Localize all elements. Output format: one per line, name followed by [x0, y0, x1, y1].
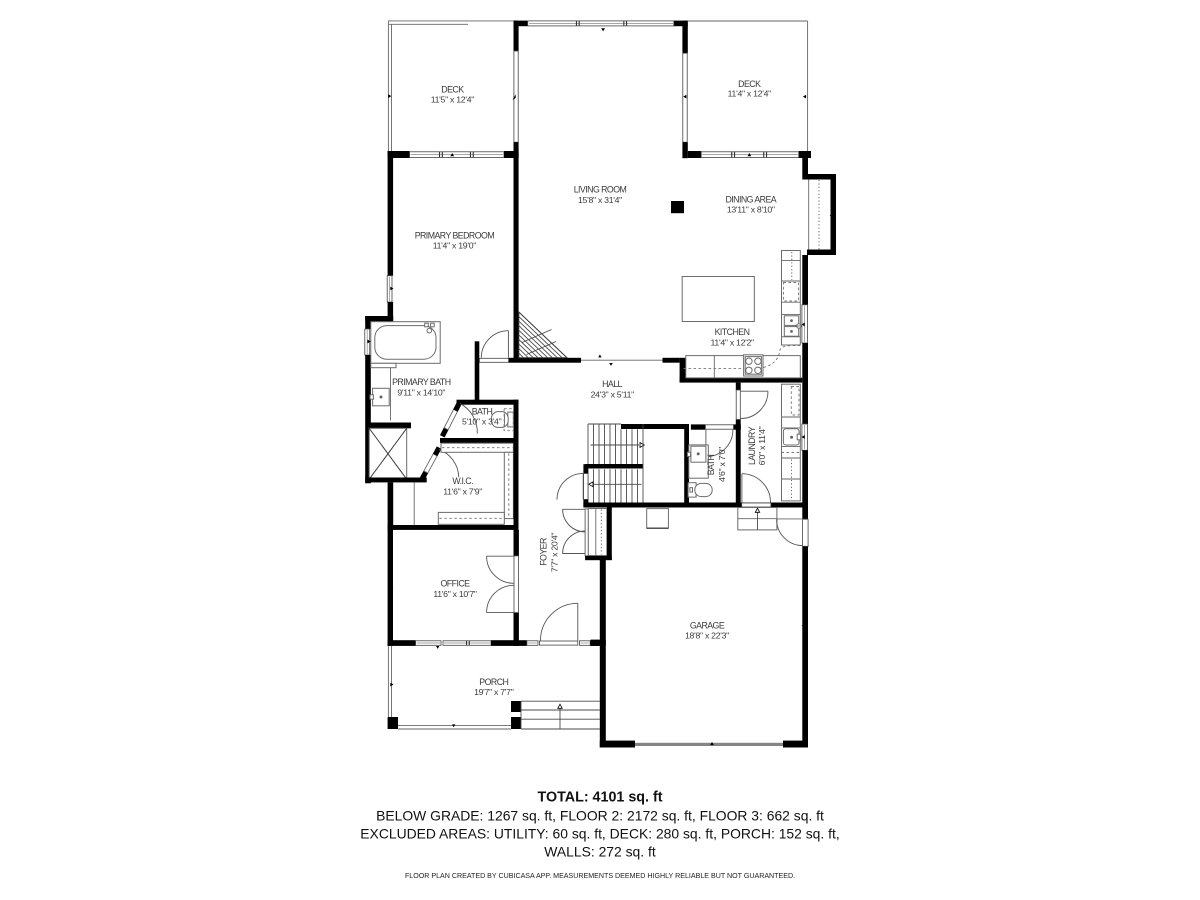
svg-text:EXCLUDED AREAS: UTILITY: 60 sq: EXCLUDED AREAS: UTILITY: 60 sq. ft, DECK…: [360, 826, 839, 842]
svg-text:19'7" x 7'7": 19'7" x 7'7": [474, 687, 514, 697]
svg-text:11'6" x 10'7": 11'6" x 10'7": [433, 589, 477, 599]
svg-text:BATH: BATH: [472, 406, 493, 416]
svg-text:11'5" x 12'4": 11'5" x 12'4": [431, 95, 475, 105]
svg-text:PORCH: PORCH: [479, 677, 508, 687]
svg-text:OFFICE: OFFICE: [441, 579, 471, 589]
svg-text:WALLS: 272 sq. ft: WALLS: 272 sq. ft: [544, 843, 656, 859]
svg-text:LAUNDRY: LAUNDRY: [747, 426, 757, 465]
svg-text:11'6" x 7'9": 11'6" x 7'9": [443, 486, 482, 496]
svg-text:18'8" x 22'3": 18'8" x 22'3": [685, 631, 729, 641]
svg-text:11'4" x 12'2": 11'4" x 12'2": [711, 337, 755, 347]
svg-text:13'11" x 8'10": 13'11" x 8'10": [727, 205, 775, 215]
svg-text:GARAGE: GARAGE: [690, 620, 725, 630]
svg-text:11'4" x 19'0": 11'4" x 19'0": [433, 241, 477, 251]
svg-text:4'6" x 7'0": 4'6" x 7'0": [717, 447, 727, 482]
svg-text:TOTAL: 4101 sq. ft: TOTAL: 4101 sq. ft: [538, 790, 663, 806]
svg-text:11'4" x 12'4": 11'4" x 12'4": [728, 89, 772, 99]
svg-text:DECK: DECK: [441, 84, 464, 94]
svg-text:15'8" x 31'4": 15'8" x 31'4": [578, 195, 622, 205]
svg-text:PRIMARY BEDROOM: PRIMARY BEDROOM: [415, 230, 495, 240]
svg-text:6'0" x 11'4": 6'0" x 11'4": [757, 426, 767, 465]
svg-text:BATH: BATH: [706, 454, 716, 475]
svg-text:DECK: DECK: [738, 79, 761, 89]
svg-text:W.I.C.: W.I.C.: [452, 476, 473, 486]
svg-text:KITCHEN: KITCHEN: [715, 327, 750, 337]
svg-text:FLOOR PLAN CREATED BY CUBICASA: FLOOR PLAN CREATED BY CUBICASA APP. MEAS…: [405, 872, 795, 880]
svg-text:9'11" x 14'10": 9'11" x 14'10": [397, 387, 445, 397]
svg-text:BELOW GRADE: 1267 sq. ft, FLOO: BELOW GRADE: 1267 sq. ft, FLOOR 2: 2172 …: [376, 808, 824, 824]
svg-text:HALL: HALL: [602, 379, 622, 389]
svg-text:LIVING ROOM: LIVING ROOM: [574, 184, 627, 194]
svg-text:24'3" x 5'11": 24'3" x 5'11": [591, 389, 635, 399]
svg-text:7'7" x 20'4": 7'7" x 20'4": [549, 533, 559, 573]
svg-text:DINING AREA: DINING AREA: [725, 194, 776, 204]
svg-text:PRIMARY BATH: PRIMARY BATH: [392, 377, 451, 387]
svg-text:FOYER: FOYER: [539, 538, 549, 566]
svg-text:5'10" x 3'4": 5'10" x 3'4": [462, 417, 502, 427]
